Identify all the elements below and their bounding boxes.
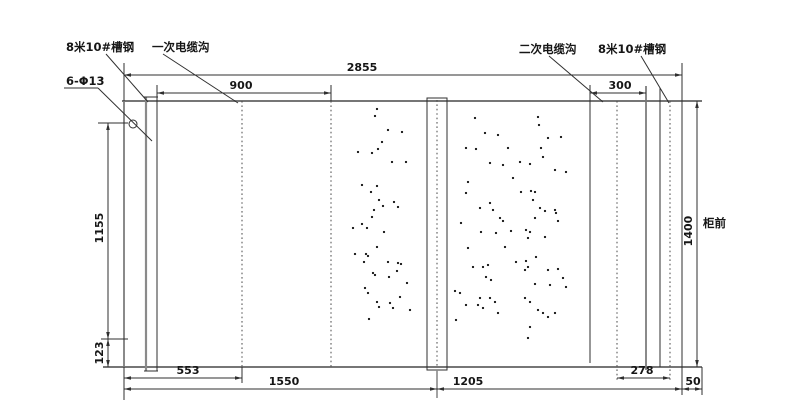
dot-left bbox=[387, 129, 389, 131]
dot-right bbox=[520, 191, 522, 193]
dot-right bbox=[519, 161, 521, 163]
dot-left bbox=[371, 216, 373, 218]
dot-right bbox=[557, 220, 559, 222]
installation-plan-drawing: 2855 900 300 1400 1155 123 553 1550 1205… bbox=[0, 0, 790, 417]
dot-right bbox=[495, 232, 497, 234]
dot-right bbox=[489, 162, 491, 164]
dim-arrow-left-upper-height bbox=[106, 123, 110, 130]
dot-right bbox=[479, 297, 481, 299]
dim-arrow-bottom-1205 bbox=[437, 387, 444, 391]
dot-right bbox=[467, 247, 469, 249]
dot-right bbox=[547, 269, 549, 271]
dim-arrow-cabinet-depth bbox=[695, 360, 699, 367]
dot-left bbox=[406, 282, 408, 284]
dot-right bbox=[524, 297, 526, 299]
dot-right bbox=[484, 132, 486, 134]
dot-left bbox=[366, 227, 368, 229]
dot-right bbox=[494, 301, 496, 303]
dot-right bbox=[527, 266, 529, 268]
dot-left bbox=[401, 131, 403, 133]
callout-primary-cable-trench: 一次电缆沟 bbox=[152, 40, 210, 54]
dim-left-upper-label: 1155 bbox=[93, 213, 106, 244]
dot-right bbox=[502, 220, 504, 222]
dot-right bbox=[544, 210, 546, 212]
dim-arrow-bottom-1205 bbox=[675, 387, 682, 391]
dot-right bbox=[475, 148, 477, 150]
dot-right bbox=[465, 192, 467, 194]
dim-553-label: 553 bbox=[177, 364, 200, 377]
left-channel-steel bbox=[144, 97, 158, 371]
dim-arrow-bottom-278 bbox=[617, 376, 624, 380]
dot-left bbox=[396, 270, 398, 272]
dot-right bbox=[489, 202, 491, 204]
dot-right bbox=[525, 260, 527, 262]
dot-right bbox=[529, 231, 531, 233]
structure bbox=[98, 63, 702, 400]
dim-arrow-bottom-1550 bbox=[124, 387, 131, 391]
dot-right bbox=[538, 124, 540, 126]
leader-hole-spec bbox=[98, 88, 152, 141]
callout-channel-steel-left: 8米10#槽钢 bbox=[66, 40, 134, 54]
dot-left bbox=[409, 309, 411, 311]
dot-right bbox=[560, 136, 562, 138]
dot-right bbox=[507, 147, 509, 149]
dot-right bbox=[480, 231, 482, 233]
dot-right bbox=[537, 116, 539, 118]
dim-arrow-bottom-278 bbox=[663, 376, 670, 380]
dot-right bbox=[530, 190, 532, 192]
dot-left bbox=[376, 246, 378, 248]
dot-right bbox=[527, 237, 529, 239]
dot-left bbox=[363, 261, 365, 263]
dot-left bbox=[368, 318, 370, 320]
dot-left bbox=[357, 151, 359, 153]
dim-arrow-secondary-trench-width bbox=[639, 91, 646, 95]
dot-right bbox=[497, 134, 499, 136]
dot-right bbox=[497, 312, 499, 314]
dim-arrow-bottom-1550 bbox=[430, 387, 437, 391]
dot-right bbox=[542, 156, 544, 158]
dot-right bbox=[554, 209, 556, 211]
dim-arrow-left-lower-height bbox=[106, 339, 110, 346]
dot-right bbox=[565, 286, 567, 288]
dot-left bbox=[354, 253, 356, 255]
dot-left bbox=[378, 306, 380, 308]
dot-left bbox=[377, 148, 379, 150]
dot-right bbox=[555, 212, 557, 214]
dot-left bbox=[378, 199, 380, 201]
dim-arrow-primary-trench-width bbox=[324, 91, 331, 95]
hole-marker bbox=[129, 120, 137, 128]
dim-arrow-left-upper-height bbox=[106, 332, 110, 339]
dot-right bbox=[465, 304, 467, 306]
dot-right bbox=[465, 147, 467, 149]
dot-left bbox=[367, 292, 369, 294]
dim-secondary-trench-label: 300 bbox=[609, 79, 632, 92]
dimension-lines bbox=[106, 73, 702, 391]
dot-right bbox=[534, 217, 536, 219]
callout-secondary-cable-trench: 二次电缆沟 bbox=[519, 42, 577, 56]
dim-overall-width-label: 2855 bbox=[347, 61, 378, 74]
dot-right bbox=[535, 256, 537, 258]
dot-left bbox=[405, 161, 407, 163]
callout-cabinet-front: 柜前 bbox=[702, 216, 726, 230]
dot-right bbox=[554, 312, 556, 314]
dot-left bbox=[374, 274, 376, 276]
dot-left bbox=[388, 276, 390, 278]
dot-right bbox=[527, 337, 529, 339]
dot-right bbox=[515, 261, 517, 263]
dot-left bbox=[372, 272, 374, 274]
dot-right bbox=[542, 312, 544, 314]
dot-right bbox=[454, 290, 456, 292]
dot-left bbox=[389, 302, 391, 304]
dim-1205-label: 1205 bbox=[453, 375, 484, 388]
dot-right bbox=[467, 181, 469, 183]
dim-50-label: 50 bbox=[685, 375, 701, 388]
dim-278-label: 278 bbox=[631, 364, 654, 377]
dot-right bbox=[532, 199, 534, 201]
dot-left bbox=[352, 227, 354, 229]
dim-arrow-primary-trench-width bbox=[157, 91, 164, 95]
dim-primary-trench-label: 900 bbox=[230, 79, 253, 92]
dot-left bbox=[391, 161, 393, 163]
dot-right bbox=[510, 230, 512, 232]
dot-right bbox=[547, 316, 549, 318]
dim-arrow-left-lower-height bbox=[106, 360, 110, 367]
dot-left bbox=[364, 287, 366, 289]
dimension-labels: 2855 900 300 1400 1155 123 553 1550 1205… bbox=[93, 61, 701, 388]
dot-right bbox=[537, 309, 539, 311]
dot-right bbox=[529, 326, 531, 328]
dot-right bbox=[539, 207, 541, 209]
dot-right bbox=[489, 297, 491, 299]
dot-left bbox=[387, 261, 389, 263]
dot-right bbox=[557, 268, 559, 270]
dim-arrow-overall-width bbox=[675, 73, 682, 77]
dot-left bbox=[399, 296, 401, 298]
dot-right bbox=[525, 229, 527, 231]
dot-right bbox=[540, 147, 542, 149]
callout-labels: 8米10#槽钢 一次电缆沟 二次电缆沟 8米10#槽钢 6-Φ13 柜前 bbox=[66, 40, 726, 230]
dot-left bbox=[383, 231, 385, 233]
dot-right bbox=[544, 236, 546, 238]
leader-channel-steel-left bbox=[106, 54, 148, 102]
dim-cabinet-depth-label: 1400 bbox=[682, 215, 695, 246]
dim-arrow-cabinet-depth bbox=[695, 101, 699, 108]
dot-left bbox=[371, 152, 373, 154]
dot-left bbox=[373, 209, 375, 211]
dot-right bbox=[459, 292, 461, 294]
dot-left bbox=[393, 201, 395, 203]
dot-left bbox=[400, 263, 402, 265]
dot-left bbox=[370, 191, 372, 193]
dot-right bbox=[492, 209, 494, 211]
dot-right bbox=[547, 137, 549, 139]
dot-right bbox=[474, 117, 476, 119]
dot-right bbox=[534, 191, 536, 193]
dot-left bbox=[397, 206, 399, 208]
dot-right bbox=[455, 319, 457, 321]
dot-right bbox=[485, 276, 487, 278]
dot-right bbox=[529, 163, 531, 165]
dot-right bbox=[504, 246, 506, 248]
dot-right bbox=[487, 264, 489, 266]
dim-arrow-bottom-553 bbox=[124, 376, 131, 380]
dot-right bbox=[479, 207, 481, 209]
dot-right bbox=[565, 171, 567, 173]
dot-left bbox=[361, 223, 363, 225]
dot-right bbox=[472, 266, 474, 268]
dot-right bbox=[554, 169, 556, 171]
dot-right bbox=[562, 277, 564, 279]
dot-right bbox=[499, 217, 501, 219]
dot-right bbox=[482, 266, 484, 268]
dot-left bbox=[376, 108, 378, 110]
dot-right bbox=[534, 283, 536, 285]
dot-left bbox=[397, 262, 399, 264]
dot-left bbox=[376, 301, 378, 303]
dot-left bbox=[381, 141, 383, 143]
dim-1550-label: 1550 bbox=[269, 375, 300, 388]
dot-right bbox=[460, 222, 462, 224]
drawing-page: 2855 900 300 1400 1155 123 553 1550 1205… bbox=[0, 0, 790, 417]
dot-left bbox=[392, 307, 394, 309]
dim-left-lower-label: 123 bbox=[93, 342, 106, 365]
mounting-dots bbox=[352, 108, 567, 339]
dot-right bbox=[482, 307, 484, 309]
dot-left bbox=[361, 184, 363, 186]
dot-right bbox=[529, 301, 531, 303]
dot-left bbox=[365, 253, 367, 255]
callout-hole-spec: 6-Φ13 bbox=[66, 74, 105, 88]
leader-secondary-cable-trench bbox=[549, 56, 603, 102]
dot-right bbox=[512, 177, 514, 179]
callout-channel-steel-right: 8米10#槽钢 bbox=[598, 42, 666, 56]
dot-right bbox=[477, 304, 479, 306]
dot-left bbox=[374, 115, 376, 117]
dot-right bbox=[490, 279, 492, 281]
dot-right bbox=[502, 164, 504, 166]
dot-left bbox=[367, 255, 369, 257]
dim-arrow-bottom-553 bbox=[235, 376, 242, 380]
dot-right bbox=[524, 269, 526, 271]
center-beam bbox=[427, 98, 447, 398]
dot-left bbox=[376, 185, 378, 187]
leader-primary-cable-trench bbox=[163, 54, 238, 103]
dot-right bbox=[549, 284, 551, 286]
dot-left bbox=[382, 205, 384, 207]
